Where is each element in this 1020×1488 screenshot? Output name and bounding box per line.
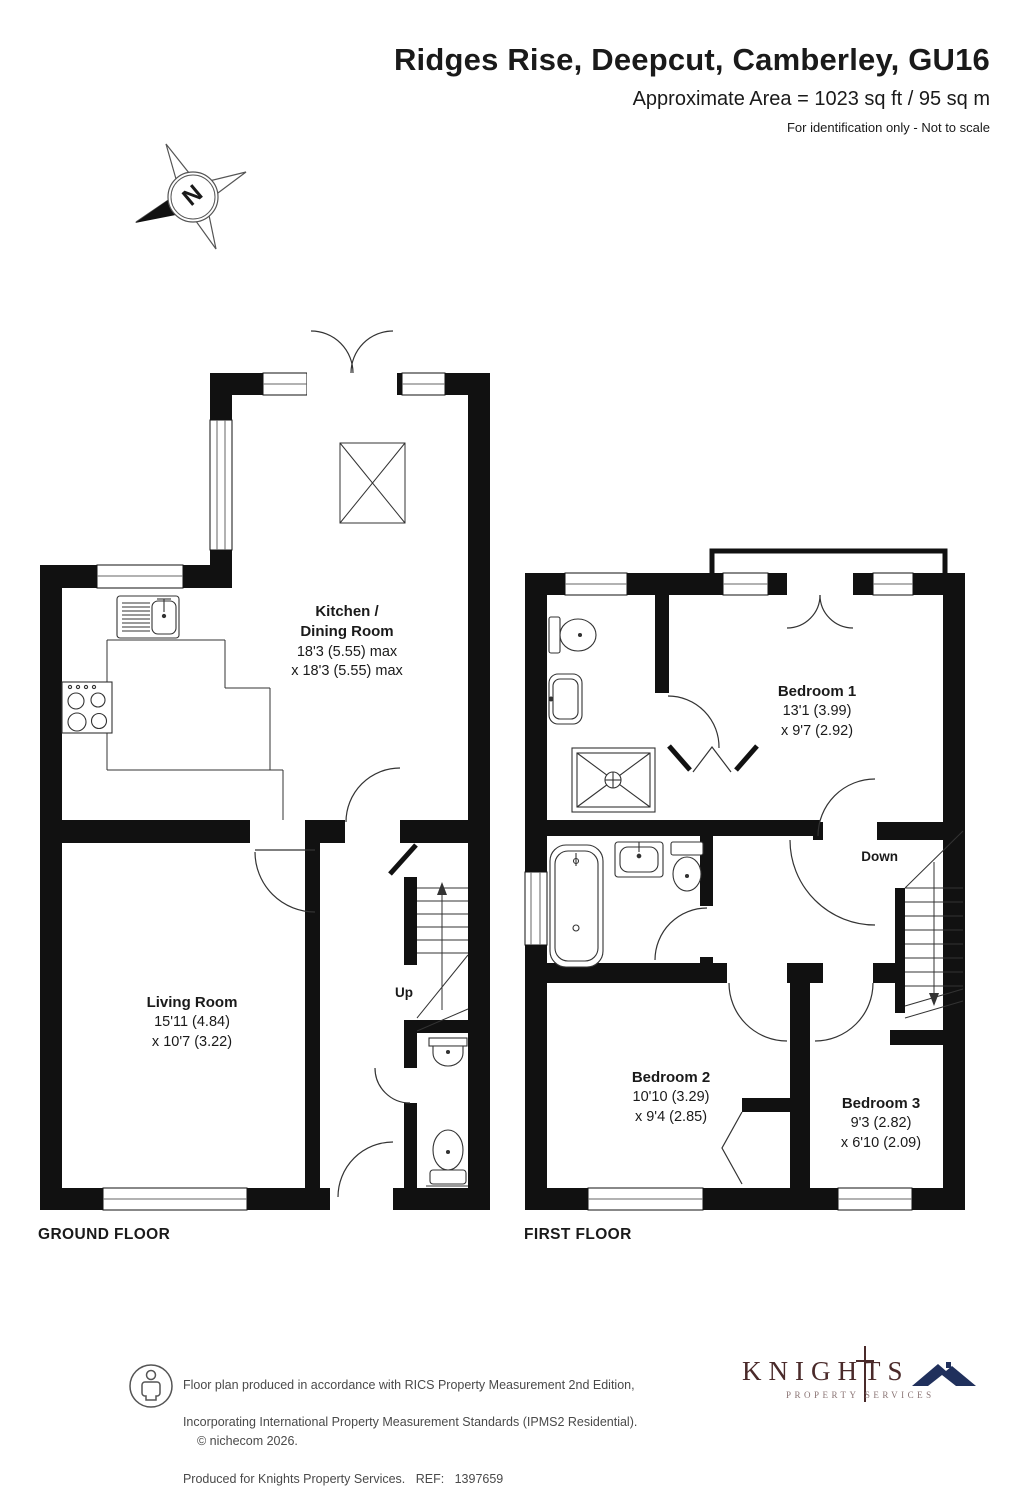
room-dimension: x 18'3 (5.55) max (247, 662, 447, 682)
area-subtitle: Approximate Area = 1023 sq ft / 95 sq m (633, 88, 990, 111)
room-dimension: 18'3 (5.55) max (247, 643, 447, 663)
agency-logo-tagline: PROPERTY SERVICES (786, 1390, 935, 1400)
stairs-up (417, 888, 468, 1031)
ensuite-toilet-icon (549, 617, 596, 653)
kitchen-sink-icon (117, 596, 179, 638)
ground-floor-title: GROUND FLOOR (38, 1226, 170, 1244)
room-dimension: x 9'4 (2.85) (571, 1108, 771, 1128)
bath-icon (550, 845, 603, 967)
room-label-bedroom-1: Bedroom 1 13'1 (3.99) x 9'7 (2.92) (717, 682, 917, 741)
room-dimension: 13'1 (3.99) (717, 702, 917, 722)
room-dimension: 15'11 (4.84) (92, 1013, 292, 1033)
stairs-door-leaf (390, 845, 416, 874)
first-floor-title: FIRST FLOOR (524, 1226, 632, 1244)
wc-basin-icon (429, 1038, 467, 1066)
ground-floor-door-arcs (255, 331, 410, 1197)
wc-toilet-icon (426, 1130, 468, 1186)
ground-floor-plan (40, 331, 490, 1211)
room-label-bedroom-2: Bedroom 2 10'10 (3.29) x 9'4 (2.85) (571, 1068, 771, 1127)
rooflight-icon (340, 443, 405, 523)
room-name: Kitchen / Dining Room (247, 602, 447, 643)
room-name: Bedroom 2 (571, 1068, 771, 1088)
agency-logo: KNIGHTS PROPERTY SERVICES (742, 1352, 1002, 1416)
balcony-door-opening (787, 572, 853, 596)
ground-floor-door-openings (250, 372, 400, 1211)
room-dimension: 9'3 (2.82) (781, 1114, 981, 1134)
room-label-living-room: Living Room 15'11 (4.84) x 10'7 (3.22) (92, 993, 292, 1052)
shower-icon (572, 748, 655, 812)
stairs-down-arrowhead (929, 993, 939, 1006)
cupboard-icon (669, 746, 757, 772)
footer-line-3: Produced for Knights Property Services. … (183, 1472, 503, 1486)
ground-floor-windows (97, 373, 445, 1210)
ensuite-basin-icon (549, 674, 582, 724)
bathroom-toilet-icon (671, 842, 703, 891)
room-name: Bedroom 3 (781, 1094, 981, 1114)
room-dimension: x 10'7 (3.22) (92, 1033, 292, 1053)
stairs-down-label: Down (840, 849, 898, 864)
footer-disclaimer: Floor plan produced in accordance with R… (176, 1357, 637, 1488)
hob-icon (62, 682, 112, 733)
page-title: Ridges Rise, Deepcut, Camberley, GU16 (394, 42, 990, 78)
room-dimension: 10'10 (3.29) (571, 1088, 771, 1108)
agency-logo-name: KNIGHTS (742, 1356, 910, 1387)
room-label-kitchen: Kitchen / Dining Room 18'3 (5.55) max x … (247, 602, 447, 682)
room-name: Living Room (92, 993, 292, 1013)
footer-line-2: Incorporating International Property Mea… (183, 1415, 637, 1429)
stairs-up-label: Up (370, 985, 413, 1000)
ground-floor-walls (40, 373, 490, 1210)
person-icon (130, 1365, 172, 1407)
copyright-text: © nichecom 2026. (197, 1434, 298, 1448)
sword-guard-icon (856, 1360, 874, 1362)
bathroom-basin-icon (615, 842, 663, 877)
roof-icon (910, 1360, 990, 1390)
room-dimension: x 9'7 (2.92) (717, 722, 917, 742)
scale-disclaimer: For identification only - Not to scale (787, 120, 990, 135)
footer-line-1: Floor plan produced in accordance with R… (183, 1378, 635, 1392)
room-name: Bedroom 1 (717, 682, 917, 702)
room-dimension: x 6'10 (2.09) (781, 1134, 981, 1154)
room-label-bedroom-3: Bedroom 3 9'3 (2.82) x 6'10 (2.09) (781, 1094, 981, 1153)
